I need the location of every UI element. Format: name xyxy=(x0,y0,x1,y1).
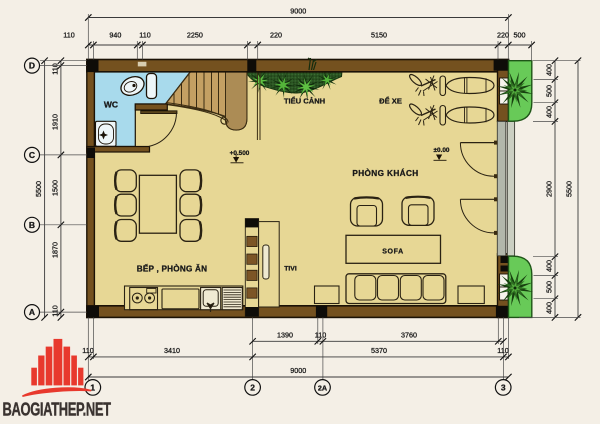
svg-text:400: 400 xyxy=(545,64,554,76)
svg-text:1390: 1390 xyxy=(277,330,293,339)
svg-text:1910: 1910 xyxy=(51,114,60,130)
svg-text:9000: 9000 xyxy=(290,366,306,375)
svg-text:5500: 5500 xyxy=(34,181,43,197)
svg-text:220: 220 xyxy=(497,31,509,40)
svg-text:1500: 1500 xyxy=(51,180,60,196)
svg-text:TIVI: TIVI xyxy=(284,266,297,273)
svg-text:110: 110 xyxy=(63,31,74,40)
svg-text:3760: 3760 xyxy=(401,330,417,339)
svg-text:BẾP , PHÒNG ĂN: BẾP , PHÒNG ĂN xyxy=(137,263,207,274)
svg-text:BAOGIATHEP.NET: BAOGIATHEP.NET xyxy=(3,400,112,420)
svg-text:110: 110 xyxy=(51,63,60,74)
svg-text:TIỂU CẢNH: TIỂU CẢNH xyxy=(284,97,325,106)
svg-text:500: 500 xyxy=(514,31,526,40)
svg-text:D: D xyxy=(29,61,35,71)
svg-text:2A: 2A xyxy=(318,383,327,392)
svg-text:±0.00: ±0.00 xyxy=(434,147,450,154)
svg-text:B: B xyxy=(29,220,35,230)
svg-text:110: 110 xyxy=(139,31,150,40)
svg-text:110: 110 xyxy=(497,346,508,355)
svg-text:500: 500 xyxy=(545,281,554,293)
svg-text:C: C xyxy=(29,150,35,160)
svg-text:940: 940 xyxy=(109,31,121,40)
svg-text:2: 2 xyxy=(250,382,255,392)
svg-text:110: 110 xyxy=(82,346,93,355)
svg-text:9000: 9000 xyxy=(290,7,306,16)
svg-text:400: 400 xyxy=(545,302,554,314)
svg-text:220: 220 xyxy=(270,31,282,40)
svg-text:400: 400 xyxy=(545,106,554,118)
svg-text:3: 3 xyxy=(501,382,506,392)
svg-text:3410: 3410 xyxy=(164,346,180,355)
svg-text:1870: 1870 xyxy=(51,242,60,258)
svg-text:110: 110 xyxy=(51,305,60,316)
svg-text:5370: 5370 xyxy=(371,346,387,355)
svg-text:WC: WC xyxy=(104,100,118,110)
svg-text:400: 400 xyxy=(545,260,554,272)
svg-text:2900: 2900 xyxy=(545,181,554,197)
svg-text:+0.500: +0.500 xyxy=(230,150,250,157)
svg-text:A: A xyxy=(29,307,35,317)
svg-text:110: 110 xyxy=(315,330,326,339)
svg-text:ĐỂ XE: ĐỂ XE xyxy=(379,97,402,106)
svg-text:500: 500 xyxy=(545,85,554,97)
svg-text:PHÒNG KHÁCH: PHÒNG KHÁCH xyxy=(352,167,418,178)
svg-text:5500: 5500 xyxy=(565,181,574,197)
svg-text:2250: 2250 xyxy=(187,31,203,40)
svg-text:SOFA: SOFA xyxy=(382,248,403,255)
svg-text:5150: 5150 xyxy=(371,31,387,40)
